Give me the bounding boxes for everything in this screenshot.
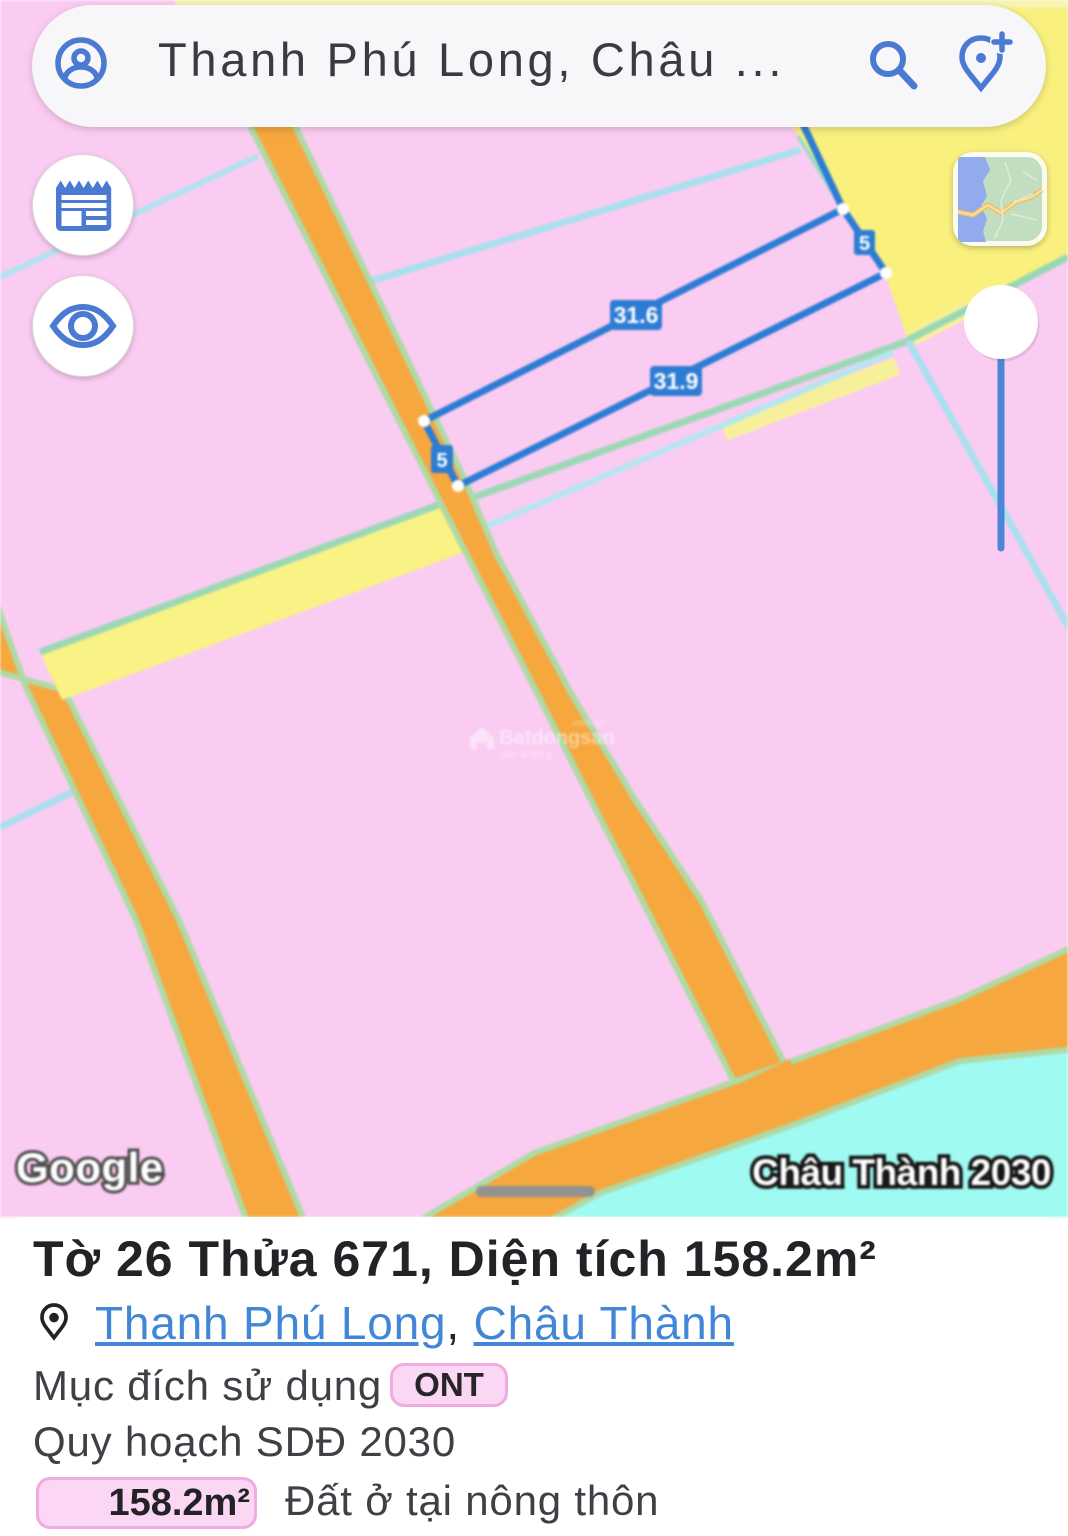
svg-text:.com.vn: .com.vn [570,718,605,729]
svg-text:Google: Google [16,1144,164,1191]
svg-text:Batdongsan: Batdongsan [499,726,614,749]
svg-text:Châu Thành 2030: Châu Thành 2030 [752,1152,1051,1193]
svg-text:bán là hết ý: bán là hết ý [500,749,552,761]
svg-text:31.9: 31.9 [654,368,699,394]
svg-text:5: 5 [436,450,447,472]
svg-text:31.6: 31.6 [614,302,659,328]
svg-text:5: 5 [859,233,870,255]
